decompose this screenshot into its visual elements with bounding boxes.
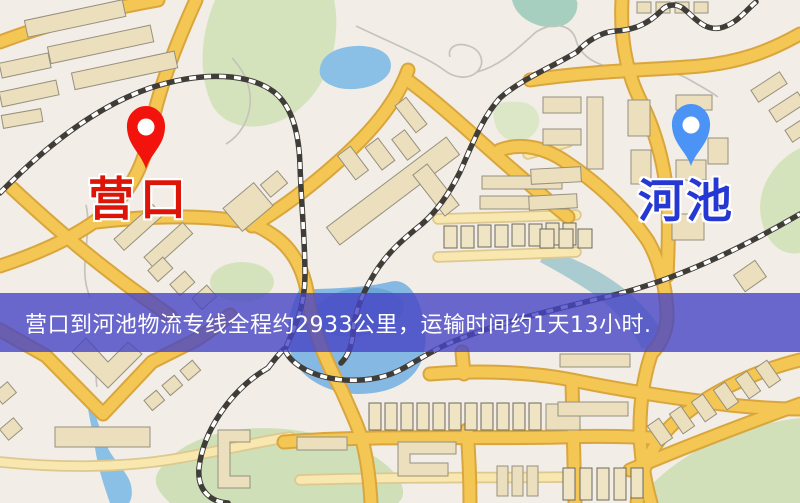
- logistics-route-map: 营口 河池 营口到河池物流专线全程约2933公里，运输时间约1天13小时.: [0, 0, 800, 503]
- route-info-banner: 营口到河池物流专线全程约2933公里，运输时间约1天13小时.: [0, 293, 800, 352]
- destination-city-label: 河池: [638, 178, 734, 224]
- route-info-text: 营口到河池物流专线全程约2933公里，运输时间约1天13小时.: [0, 307, 651, 339]
- origin-city-label: 营口: [88, 176, 192, 222]
- map-canvas: [0, 0, 800, 503]
